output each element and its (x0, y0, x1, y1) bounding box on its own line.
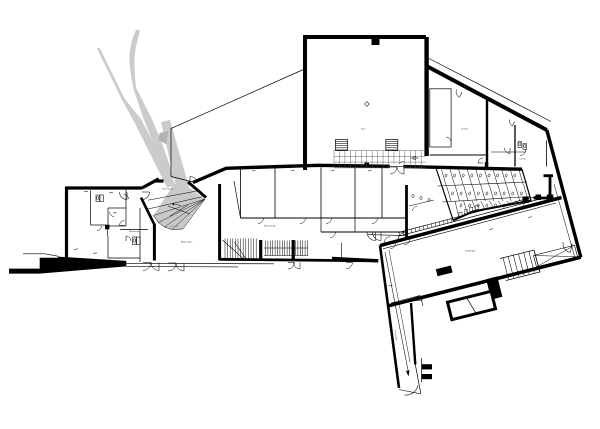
svg-text:Mittel Foyer: Mittel Foyer (181, 241, 193, 244)
svg-text:Technik: Technik (461, 129, 468, 131)
svg-text:Porte Sauna: Porte Sauna (162, 188, 174, 191)
svg-text:Garderobe: Garderobe (465, 250, 476, 253)
svg-text:Wand mit oge: Wand mit oge (264, 225, 276, 228)
svg-text:+4.50 ob WK: +4.50 ob WK (170, 226, 179, 228)
svg-text:Technik: Technik (519, 159, 526, 161)
svg-text:Saal: Saal (361, 129, 366, 131)
svg-text:Ruheraum: Ruheraum (129, 230, 139, 233)
